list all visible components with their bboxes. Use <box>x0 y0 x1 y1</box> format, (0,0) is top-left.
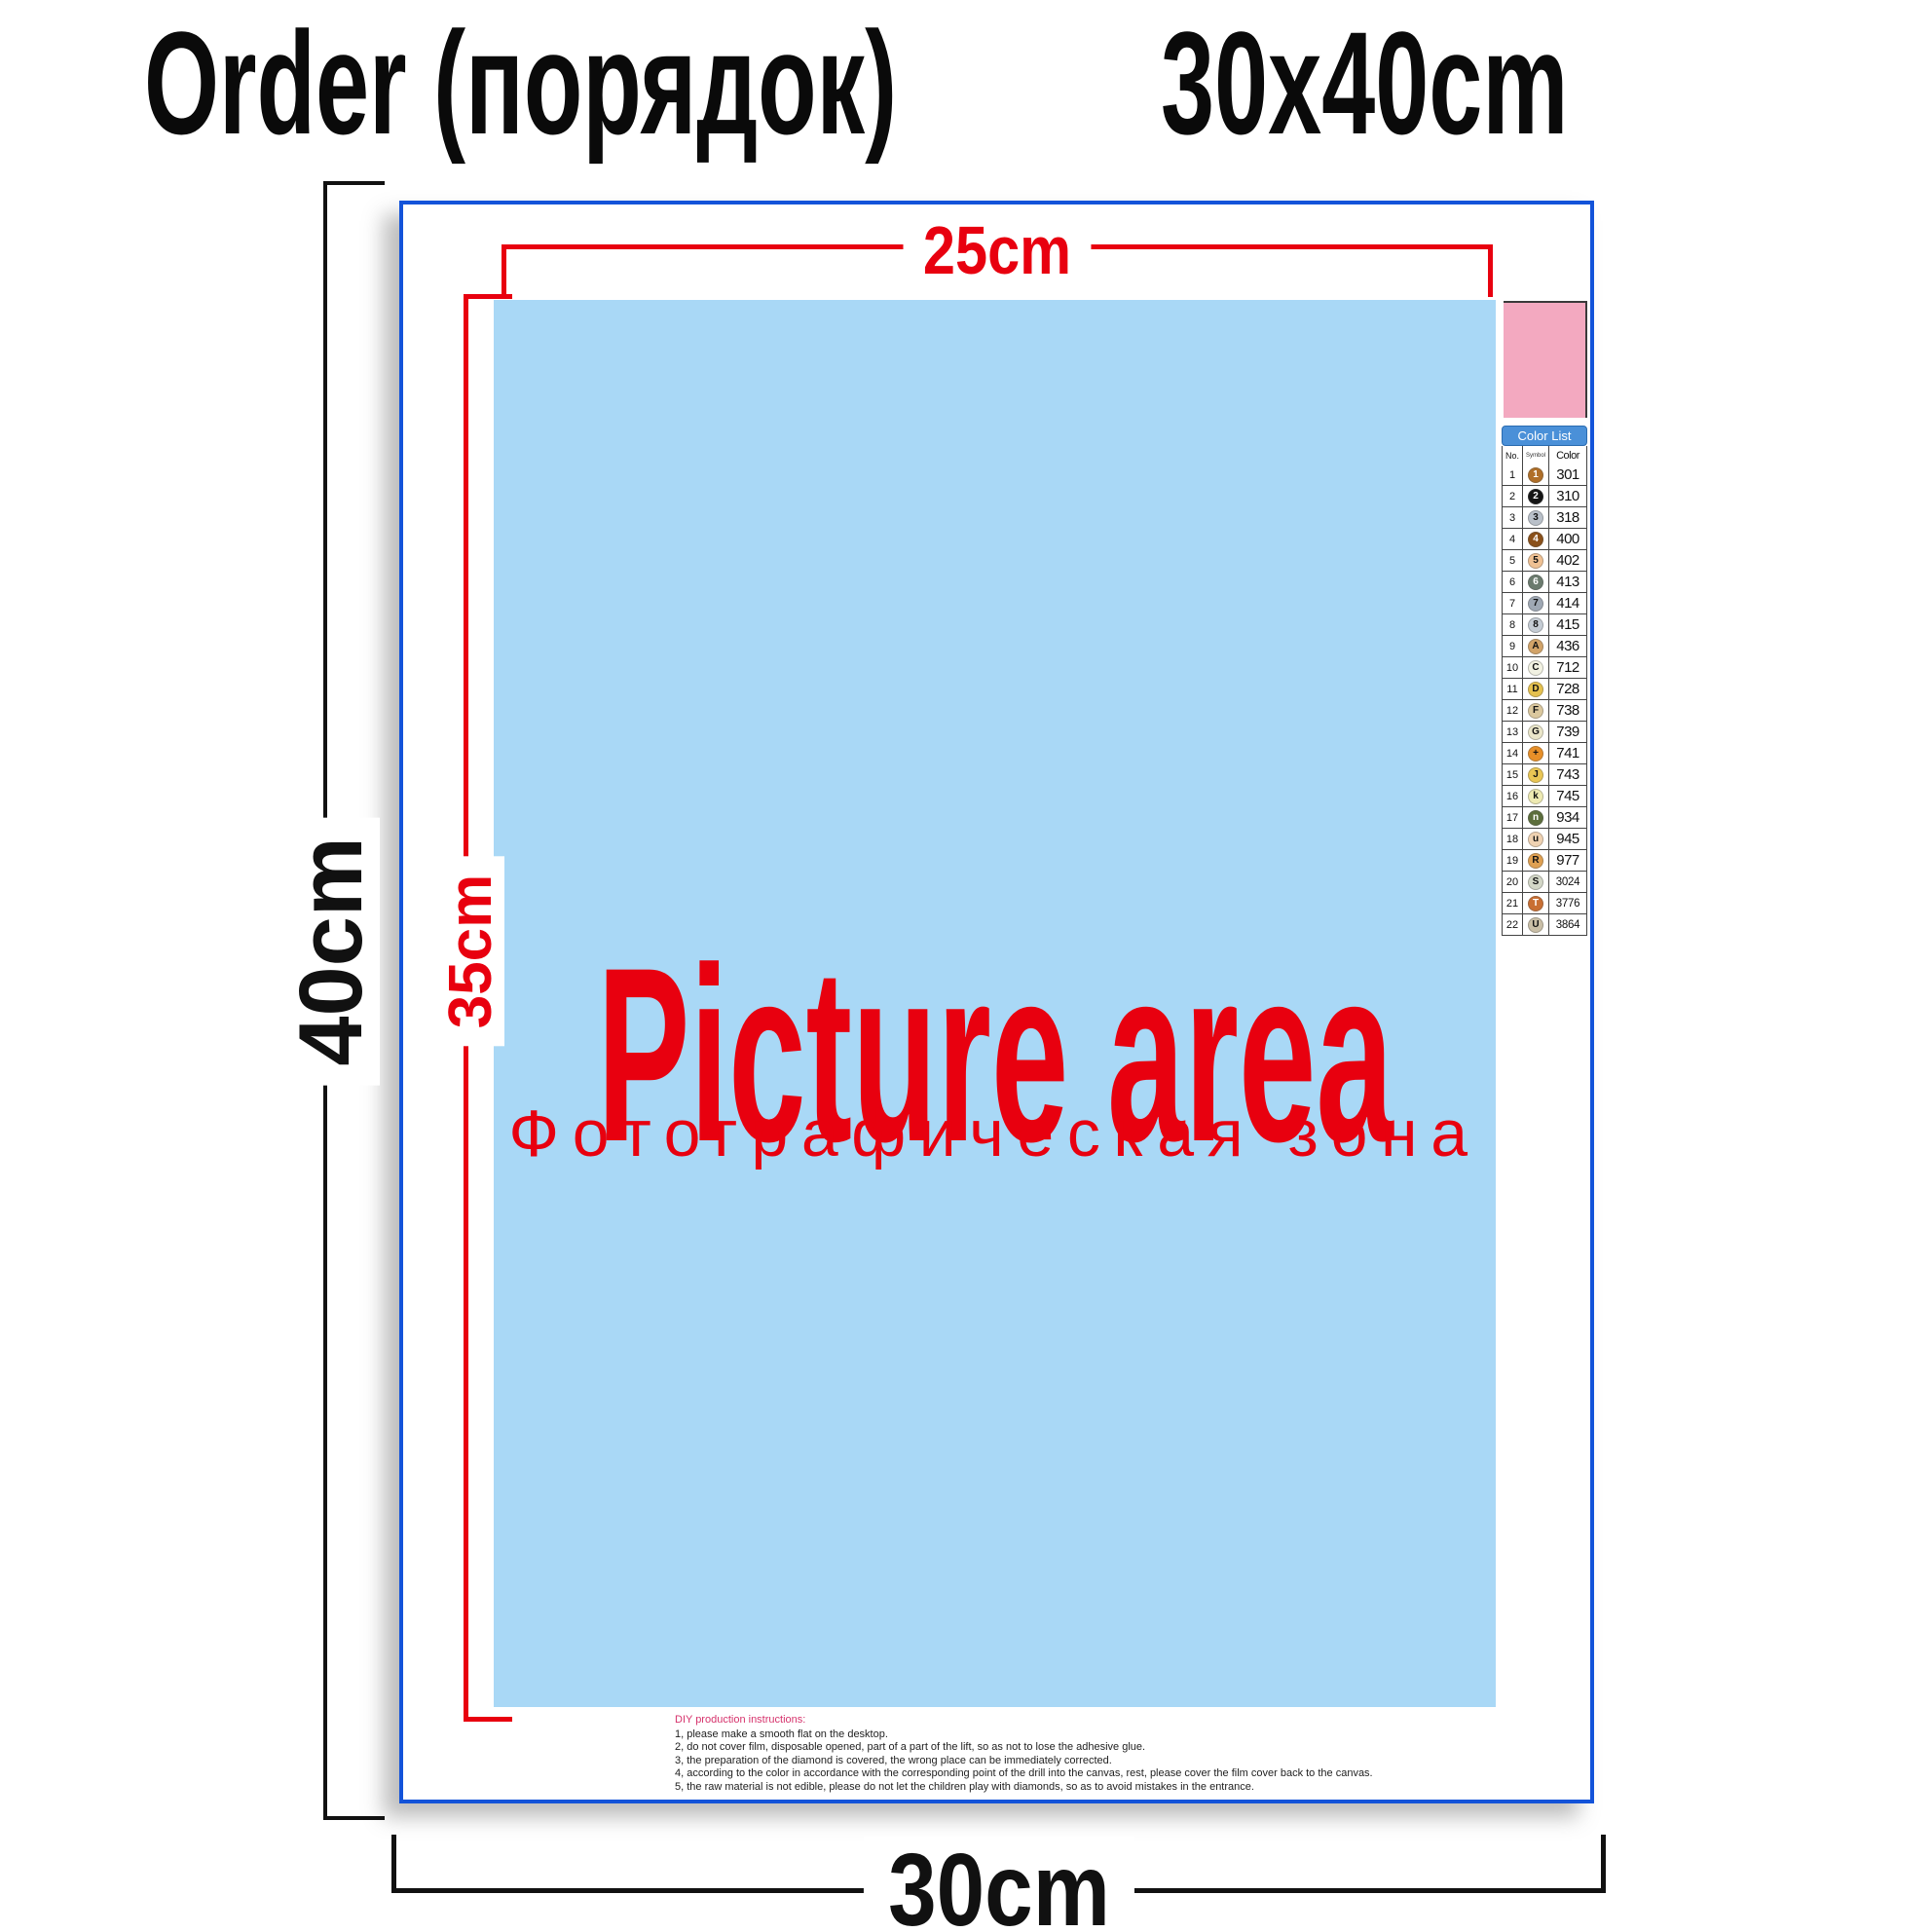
color-row-symbol-cell: R <box>1523 850 1549 871</box>
symbol-circle-icon: k <box>1528 789 1543 804</box>
color-row-number: 20 <box>1503 872 1523 892</box>
color-row-code: 414 <box>1549 593 1586 613</box>
dimension-label-35cm: 35cm <box>438 856 504 1046</box>
symbol-circle-icon: F <box>1528 703 1543 719</box>
color-row-symbol-cell: 7 <box>1523 593 1549 613</box>
instructions-block: DIY production instructions: 1, please m… <box>675 1714 1493 1794</box>
color-row-number: 12 <box>1503 700 1523 721</box>
color-row-symbol-cell: J <box>1523 764 1549 785</box>
symbol-circle-icon: D <box>1528 682 1543 697</box>
color-row-symbol-cell: A <box>1523 636 1549 656</box>
color-list-row: 22310 <box>1503 485 1586 506</box>
color-row-code: 712 <box>1549 657 1586 678</box>
color-row-symbol-cell: 5 <box>1523 550 1549 571</box>
color-list-row: 33318 <box>1503 506 1586 528</box>
color-list-row: 88415 <box>1503 613 1586 635</box>
color-list-row: 16k745 <box>1503 785 1586 806</box>
dimension-label-40cm: 40cm <box>282 818 380 1086</box>
color-list-body: 1130122310333184440055402664137741488415… <box>1503 464 1586 935</box>
color-list-row: 12F738 <box>1503 699 1586 721</box>
color-list-row: 55402 <box>1503 549 1586 571</box>
color-row-symbol-cell: 2 <box>1523 486 1549 506</box>
color-row-code: 436 <box>1549 636 1586 656</box>
color-list-row: 66413 <box>1503 571 1586 592</box>
color-row-code: 945 <box>1549 829 1586 849</box>
instruction-line: 2, do not cover film, disposable opened,… <box>675 1741 1493 1755</box>
color-list-row: 15J743 <box>1503 763 1586 785</box>
symbol-circle-icon: 3 <box>1528 510 1543 526</box>
color-row-number: 10 <box>1503 657 1523 678</box>
color-row-number: 18 <box>1503 829 1523 849</box>
instructions-title: DIY production instructions: <box>675 1714 1493 1728</box>
picture-area-label-ru-anchor: Фотографическая зона <box>508 1100 1480 1167</box>
color-row-number: 4 <box>1503 529 1523 549</box>
color-row-number: 17 <box>1503 807 1523 828</box>
color-list-row: 17n934 <box>1503 806 1586 828</box>
color-row-symbol-cell: u <box>1523 829 1549 849</box>
symbol-circle-icon: + <box>1528 746 1543 762</box>
column-header-color: Color <box>1549 446 1586 464</box>
color-row-code: 743 <box>1549 764 1586 785</box>
pink-swatch <box>1504 301 1587 418</box>
color-row-code: 934 <box>1549 807 1586 828</box>
symbol-circle-icon: 1 <box>1528 467 1543 483</box>
color-list-row: 20S3024 <box>1503 871 1586 892</box>
symbol-circle-icon: T <box>1528 896 1543 911</box>
instruction-line: 5, the raw material is not edible, pleas… <box>675 1781 1493 1795</box>
symbol-circle-icon: 7 <box>1528 596 1543 612</box>
symbol-circle-icon: R <box>1528 853 1543 869</box>
color-row-code: 413 <box>1549 572 1586 592</box>
color-list-row: 77414 <box>1503 592 1586 613</box>
symbol-circle-icon: 5 <box>1528 553 1543 569</box>
color-row-code: 310 <box>1549 486 1586 506</box>
column-header-no: No. <box>1503 446 1523 464</box>
color-row-symbol-cell: n <box>1523 807 1549 828</box>
color-list-row: 19R977 <box>1503 849 1586 871</box>
color-list-row: 44400 <box>1503 528 1586 549</box>
color-row-code: 977 <box>1549 850 1586 871</box>
color-row-number: 22 <box>1503 914 1523 935</box>
color-list-table: No. Symbol Color 11301223103331844400554… <box>1502 446 1587 936</box>
symbol-circle-icon: u <box>1528 832 1543 847</box>
color-list-row: 10C712 <box>1503 656 1586 678</box>
column-header-symbol: Symbol <box>1523 446 1549 464</box>
symbol-circle-icon: 6 <box>1528 575 1543 590</box>
color-list-row: 18u945 <box>1503 828 1586 849</box>
dimension-bracket-30cm: 30cm <box>391 1835 1606 1893</box>
symbol-circle-icon: S <box>1528 874 1543 890</box>
symbol-circle-icon: U <box>1528 917 1543 933</box>
color-row-code: 3024 <box>1549 872 1586 892</box>
color-row-symbol-cell: S <box>1523 872 1549 892</box>
color-row-number: 9 <box>1503 636 1523 656</box>
picture-area: Picture area Фотографическая зона <box>494 300 1496 1707</box>
symbol-circle-icon: A <box>1528 639 1543 654</box>
color-row-code: 402 <box>1549 550 1586 571</box>
color-row-number: 14 <box>1503 743 1523 763</box>
color-list-row: 14+741 <box>1503 742 1586 763</box>
color-row-symbol-cell: G <box>1523 722 1549 742</box>
dimension-label-30cm: 30cm <box>863 1837 1133 1932</box>
order-diagram: Order (порядок) 30x40cm Picture area Фот… <box>0 0 1932 1932</box>
color-row-symbol-cell: U <box>1523 914 1549 935</box>
symbol-circle-icon: C <box>1528 660 1543 676</box>
color-row-symbol-cell: 6 <box>1523 572 1549 592</box>
color-row-code: 3776 <box>1549 893 1586 913</box>
color-row-number: 2 <box>1503 486 1523 506</box>
color-row-symbol-cell: 8 <box>1523 614 1549 635</box>
color-list-row: 11D728 <box>1503 678 1586 699</box>
instructions-lines: 1, please make a smooth flat on the desk… <box>675 1728 1493 1795</box>
color-row-code: 400 <box>1549 529 1586 549</box>
color-row-number: 7 <box>1503 593 1523 613</box>
symbol-circle-icon: n <box>1528 810 1543 826</box>
instruction-line: 1, please make a smooth flat on the desk… <box>675 1728 1493 1742</box>
color-row-number: 5 <box>1503 550 1523 571</box>
color-row-number: 6 <box>1503 572 1523 592</box>
color-row-number: 16 <box>1503 786 1523 806</box>
dimension-label-35cm-anchor: 35cm <box>438 856 504 1046</box>
color-list-row: 21T3776 <box>1503 892 1586 913</box>
color-row-symbol-cell: + <box>1523 743 1549 763</box>
color-row-number: 21 <box>1503 893 1523 913</box>
color-row-symbol-cell: k <box>1523 786 1549 806</box>
color-row-code: 745 <box>1549 786 1586 806</box>
dimension-label-25cm: 25cm <box>904 214 1092 286</box>
color-list-row: 13G739 <box>1503 721 1586 742</box>
picture-area-label-ru: Фотографическая зона <box>508 1100 1480 1167</box>
color-row-symbol-cell: 1 <box>1523 464 1549 485</box>
color-list-row: 11301 <box>1503 464 1586 485</box>
color-row-symbol-cell: D <box>1523 679 1549 699</box>
color-row-number: 3 <box>1503 507 1523 528</box>
dimension-label-30cm-anchor: 30cm <box>837 1837 1160 1932</box>
page-title-size: 30x40cm <box>1161 10 1568 156</box>
color-row-symbol-cell: 3 <box>1523 507 1549 528</box>
instruction-line: 4, according to the color in accordance … <box>675 1767 1493 1781</box>
symbol-circle-icon: J <box>1528 767 1543 783</box>
color-list-row: 9A436 <box>1503 635 1586 656</box>
color-list-column-headers: No. Symbol Color <box>1503 446 1586 464</box>
color-row-number: 13 <box>1503 722 1523 742</box>
color-row-code: 728 <box>1549 679 1586 699</box>
symbol-circle-icon: 4 <box>1528 532 1543 547</box>
color-row-number: 11 <box>1503 679 1523 699</box>
instruction-line: 3, the preparation of the diamond is cov… <box>675 1755 1493 1768</box>
color-row-code: 3864 <box>1549 914 1586 935</box>
color-row-code: 301 <box>1549 464 1586 485</box>
symbol-circle-icon: 8 <box>1528 617 1543 633</box>
color-list: Color List No. Symbol Color 113012231033… <box>1502 426 1587 936</box>
color-list-header: Color List <box>1502 426 1587 446</box>
dimension-bracket-25cm: 25cm <box>502 244 1493 297</box>
symbol-circle-icon: G <box>1528 724 1543 740</box>
color-row-number: 1 <box>1503 464 1523 485</box>
color-row-symbol-cell: C <box>1523 657 1549 678</box>
page-title: Order (порядок) <box>144 10 897 156</box>
color-list-row: 22U3864 <box>1503 913 1586 935</box>
color-row-number: 19 <box>1503 850 1523 871</box>
color-row-code: 415 <box>1549 614 1586 635</box>
color-row-code: 318 <box>1549 507 1586 528</box>
color-row-symbol-cell: T <box>1523 893 1549 913</box>
color-row-code: 739 <box>1549 722 1586 742</box>
color-row-symbol-cell: 4 <box>1523 529 1549 549</box>
color-row-number: 15 <box>1503 764 1523 785</box>
color-row-number: 8 <box>1503 614 1523 635</box>
dimension-label-40cm-anchor: 40cm <box>282 818 380 1086</box>
dimension-bracket-40cm: 40cm <box>323 181 385 1820</box>
color-row-code: 741 <box>1549 743 1586 763</box>
symbol-circle-icon: 2 <box>1528 489 1543 504</box>
color-row-code: 738 <box>1549 700 1586 721</box>
dimension-bracket-35cm: 35cm <box>464 294 512 1722</box>
color-row-symbol-cell: F <box>1523 700 1549 721</box>
dimension-label-25cm-anchor: 25cm <box>886 214 1107 286</box>
